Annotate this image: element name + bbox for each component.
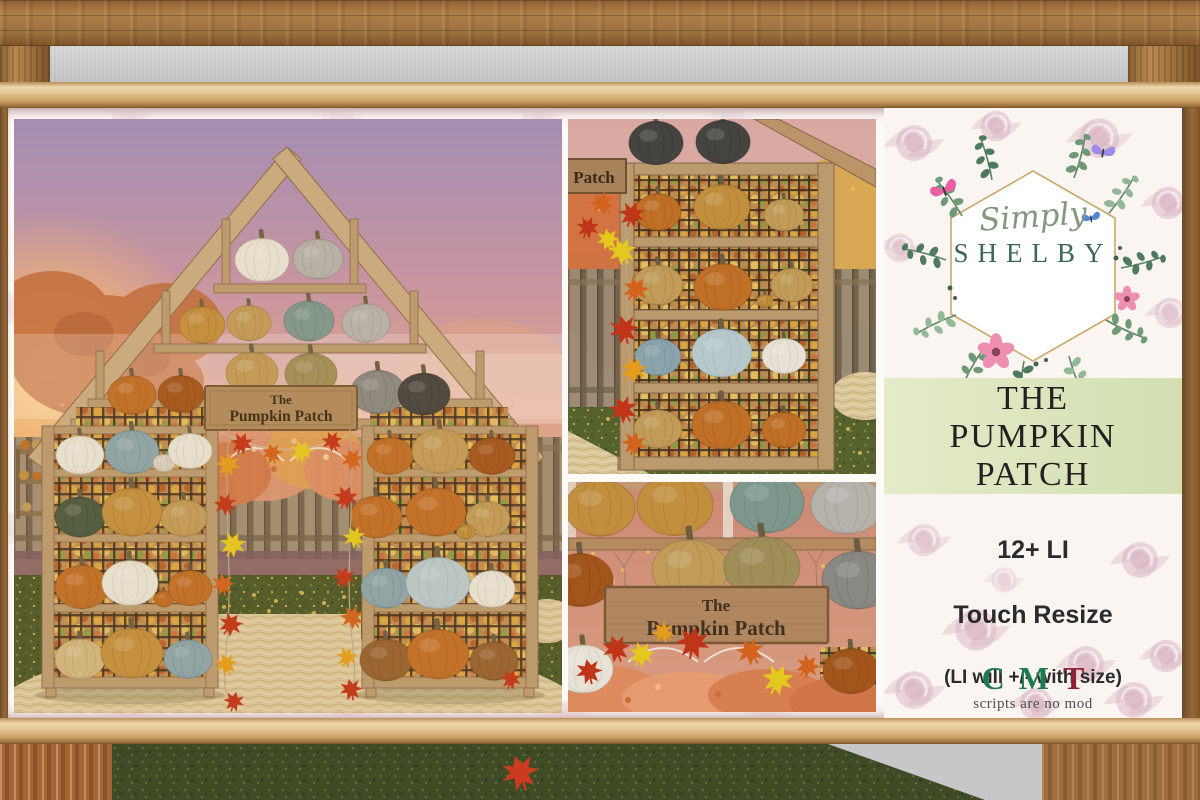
title-line-3: PATCH <box>884 456 1182 494</box>
perm-modify: M <box>1019 660 1049 696</box>
perm-transfer: T <box>1063 660 1084 696</box>
stand-post-top-left <box>0 46 50 82</box>
title-line-1: THE <box>884 380 1182 418</box>
info-touch-resize: Touch Resize <box>884 601 1182 629</box>
photo-closeup-sign: The Pumpkin Patch <box>568 482 876 712</box>
stand-top-planks <box>0 0 1200 46</box>
stand-post-bottom-right <box>1042 744 1200 800</box>
stand-edge-left <box>0 108 8 718</box>
svg-text:Patch: Patch <box>573 168 615 187</box>
title-line-2: PUMPKIN <box>884 418 1182 456</box>
photo-full-display: The Pumpkin Patch <box>14 119 562 713</box>
stand-edge-right <box>1182 108 1200 718</box>
background-gray-wall <box>50 46 1128 82</box>
sign-closeup: The Pumpkin Patch <box>605 587 828 643</box>
stand-rail-top <box>0 82 1200 108</box>
permissions-note: scripts are no mod <box>884 696 1182 712</box>
stand-post-bottom-left <box>0 744 112 800</box>
info-land-impact: 12+ LI <box>884 536 1182 565</box>
vendor-poster[interactable]: The Pumpkin Patch <box>8 108 1182 718</box>
screenshot-scene: The Pumpkin Patch <box>0 0 1200 800</box>
photo-closeup-shelves: Patch <box>568 119 876 474</box>
permissions: CMT <box>884 660 1182 696</box>
svg-text:The: The <box>702 596 731 615</box>
stand-rail-bottom <box>0 718 1200 744</box>
sign-fragment: Patch <box>568 159 626 193</box>
brand-name: SHELBY <box>884 238 1182 268</box>
info-panel: Simply SHELBY THE PUMPKIN PATCH 12+ LI T… <box>884 108 1182 718</box>
product-title-band: THE PUMPKIN PATCH <box>884 378 1182 494</box>
ground-grass <box>112 744 1042 800</box>
perm-copy: C <box>982 660 1005 696</box>
stand-post-top-right <box>1128 46 1200 82</box>
